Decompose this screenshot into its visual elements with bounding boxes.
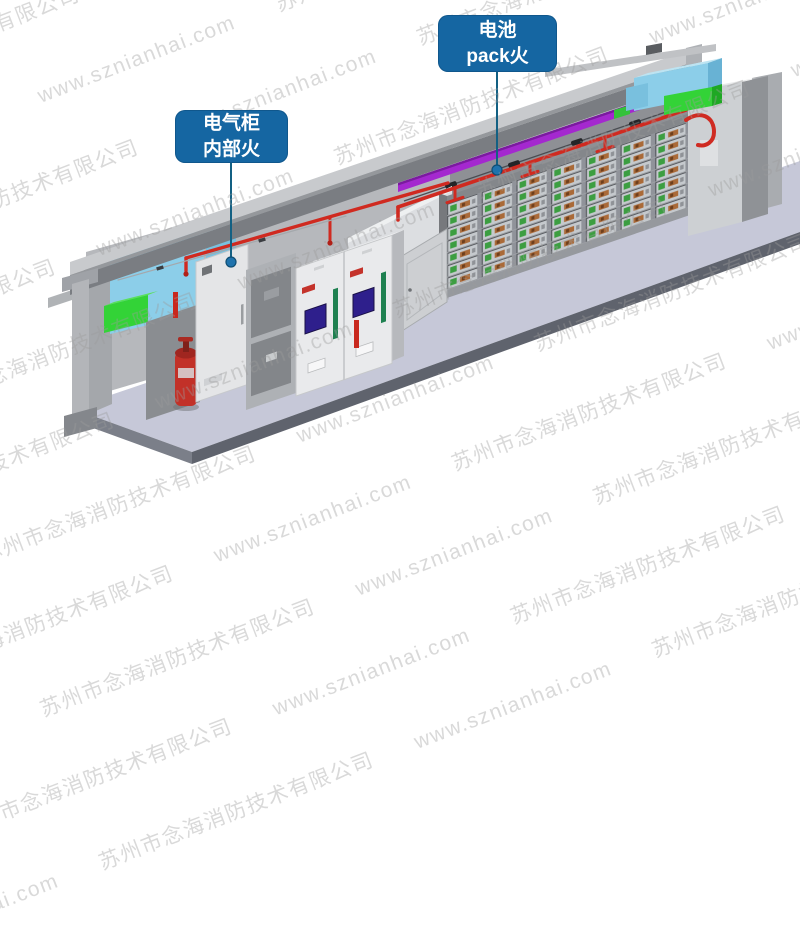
leader-dot-electrical [226,257,236,267]
post-foot [64,407,97,437]
callout-line: 内部火 [203,137,260,162]
nozzle [183,271,188,276]
callout-electrical-cabinet-fire: 电气柜 内部火 [175,110,288,163]
white-tall-cabinet [196,244,248,402]
gray-panel-cabinet [246,253,296,410]
callout-line: 电池 [478,18,516,43]
diagram-stage: www.sznianhai.com 苏州市念海消防技术有限公司 www.szni… [0,0,800,470]
leader-dot-battery [492,165,502,175]
callout-battery-pack-fire: 电池 pack火 [438,15,557,72]
nozzle [327,240,332,245]
door-handle [408,288,412,292]
callout-line: 电气柜 [203,111,260,136]
container-3d-rendering [0,0,800,470]
callout-line: pack火 [466,44,528,69]
